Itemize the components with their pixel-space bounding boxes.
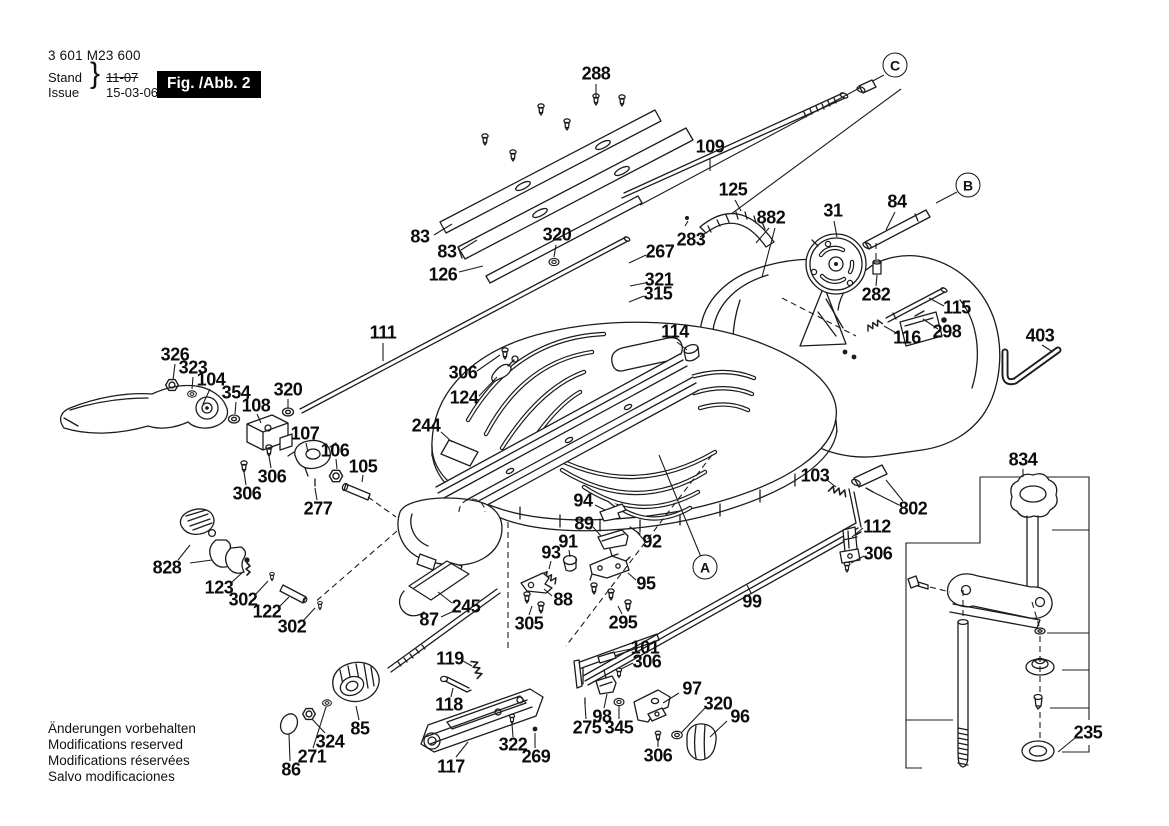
part-callout-111: 111	[370, 323, 397, 344]
part-callout-119: 119	[436, 649, 464, 670]
part-callout-802: 802	[899, 499, 928, 520]
part-callout-235: 235	[1074, 723, 1103, 744]
part-callout-117: 117	[437, 757, 465, 778]
part-callout-282: 282	[862, 285, 891, 306]
inset-detail-box	[906, 474, 1089, 768]
part-callout-87: 87	[419, 610, 438, 631]
part-callout-834: 834	[1009, 450, 1038, 471]
part-callout-288: 288	[582, 64, 611, 85]
view-marker-A: A	[693, 555, 718, 580]
revision-block: } Stand11-07 Issue15-03-06	[48, 71, 158, 100]
part-callout-126: 126	[429, 265, 458, 286]
part-callout-306: 306	[449, 363, 478, 384]
handwheel-31	[806, 234, 866, 294]
inset-wing-screw	[908, 576, 928, 589]
part-callout-315: 315	[644, 284, 673, 305]
part-callout-269: 269	[522, 747, 551, 768]
part-callout-105: 105	[349, 457, 378, 478]
part-callout-306: 306	[644, 746, 673, 767]
disclaimer-line: Modifications reserved	[48, 737, 196, 753]
part-callout-306: 306	[258, 467, 287, 488]
part-callout-267: 267	[646, 242, 675, 263]
depth-stop-rod-109	[622, 80, 876, 198]
disclaimer-line: Salvo modificaciones	[48, 769, 196, 785]
part-callout-245: 245	[452, 597, 481, 618]
part-callout-112: 112	[863, 517, 891, 538]
part-callout-92: 92	[642, 532, 661, 553]
part-callout-116: 116	[893, 328, 921, 349]
part-callout-84: 84	[887, 192, 906, 213]
part-callout-244: 244	[412, 416, 441, 437]
part-callout-103: 103	[801, 466, 830, 487]
inset-hardware-stack	[1022, 628, 1054, 761]
part-callout-109: 109	[696, 137, 725, 158]
view-marker-C: C	[883, 53, 908, 78]
document-number: 3 601 M23 600	[48, 48, 158, 63]
part-callout-108: 108	[242, 396, 271, 417]
allen-key-403	[1005, 350, 1058, 382]
part-callout-95: 95	[636, 574, 655, 595]
issue-label: Issue	[48, 86, 88, 101]
issue-value: 15-03-06	[106, 85, 158, 100]
part-callout-403: 403	[1026, 326, 1055, 347]
part-callout-302: 302	[278, 617, 307, 638]
parts-diagram-page: 3 601 M23 600 } Stand11-07 Issue15-03-06…	[0, 0, 1169, 826]
part-callout-31: 31	[823, 201, 842, 222]
stand-value: 11-07	[106, 70, 138, 85]
view-marker-B: B	[956, 173, 981, 198]
part-callout-124: 124	[450, 388, 479, 409]
part-callout-271: 271	[298, 747, 327, 768]
part-callout-295: 295	[609, 613, 638, 634]
part-callout-283: 283	[677, 230, 706, 251]
part-callout-107: 107	[291, 424, 320, 445]
part-callout-89: 89	[574, 514, 593, 535]
part-callout-97: 97	[682, 679, 701, 700]
inset-threaded-rod	[958, 620, 968, 767]
part-callout-115: 115	[943, 298, 971, 319]
brace-glyph: }	[90, 67, 100, 82]
part-callout-298: 298	[933, 322, 962, 343]
part-callout-306: 306	[864, 544, 893, 565]
disclaimer-line: Modifications réservées	[48, 753, 196, 769]
part-callout-306: 306	[233, 484, 262, 505]
part-callout-114: 114	[661, 322, 689, 343]
part-callout-91: 91	[558, 532, 577, 553]
part-callout-96: 96	[730, 707, 749, 728]
part-callout-306: 306	[633, 652, 662, 673]
part-callout-94: 94	[573, 491, 592, 512]
part-callout-305: 305	[515, 614, 544, 635]
exploded-view-drawing	[0, 0, 1169, 826]
part-callout-828: 828	[153, 558, 182, 579]
part-callout-118: 118	[435, 695, 463, 716]
part-callout-320: 320	[543, 225, 572, 246]
part-callout-320: 320	[704, 694, 733, 715]
part-callout-125: 125	[719, 180, 748, 201]
part-callout-86: 86	[281, 760, 300, 781]
title-block: 3 601 M23 600 } Stand11-07 Issue15-03-06	[48, 48, 158, 100]
part-callout-83: 83	[437, 242, 456, 263]
part-callout-85: 85	[350, 719, 369, 740]
figure-caption: Fig. /Abb. 2	[157, 71, 261, 98]
disclaimer-line: Änderungen vorbehalten	[48, 721, 196, 737]
part-callout-88: 88	[553, 590, 572, 611]
part-callout-345: 345	[605, 718, 634, 739]
part-callout-277: 277	[304, 499, 333, 520]
part-callout-83: 83	[410, 227, 429, 248]
star-knob-834	[1011, 474, 1057, 600]
part-callout-106: 106	[321, 441, 350, 462]
disclaimer-text: Änderungen vorbehaltenModifications rese…	[48, 721, 196, 785]
part-callout-275: 275	[573, 718, 602, 739]
stand-label: Stand	[48, 71, 88, 86]
turntable	[432, 322, 837, 532]
part-callout-99: 99	[742, 592, 761, 613]
part-callout-320: 320	[274, 380, 303, 401]
part-callout-882: 882	[757, 208, 786, 229]
